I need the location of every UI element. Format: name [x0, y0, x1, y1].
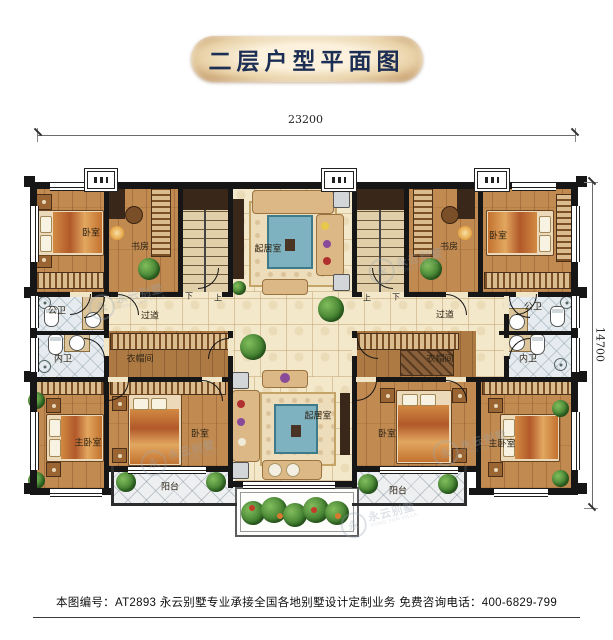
side-table [232, 372, 249, 389]
side-table [232, 462, 249, 479]
page-title: 二层户型平面图 [209, 42, 405, 76]
cushion [286, 463, 300, 477]
room-label-living-top: 起居室 [254, 242, 281, 255]
balcony-wall [111, 503, 237, 506]
room-label-closet-left: 衣帽间 [126, 352, 153, 365]
plant [552, 400, 569, 417]
cushion [323, 240, 331, 248]
sofa [232, 390, 260, 462]
shower-head [38, 360, 51, 373]
window [571, 206, 580, 262]
plant [438, 474, 458, 494]
cushion [237, 418, 245, 426]
plant [138, 258, 160, 280]
chair [441, 206, 459, 224]
room-label-study-right: 书房 [440, 240, 458, 253]
toilet [550, 306, 565, 327]
stair-label-down: 下 [392, 292, 400, 303]
room-label-bath-public-left: 公卫 [48, 304, 66, 317]
wall-interior [478, 182, 483, 297]
shower-head [554, 358, 567, 371]
floorplan-page: { "title": "二层户型平面图", "dimensions": { "w… [0, 0, 613, 640]
nightstand [46, 398, 61, 413]
room-label-bedroom-bottom-left: 卧室 [191, 427, 209, 440]
wall-interior [499, 331, 578, 335]
footer-info: 本图编号：AT2893 永云别墅专业承接全国各地别墅设计定制业务 免费咨询电话：… [0, 594, 613, 610]
side-table [333, 191, 350, 208]
dim-height-label: 14700 [594, 325, 607, 365]
window [30, 412, 39, 470]
window [30, 296, 39, 328]
vent-box [477, 171, 507, 189]
bookshelf [151, 187, 171, 257]
dim-width-label: 23200 [288, 113, 323, 126]
wall-interior [404, 182, 409, 297]
wardrobe [484, 272, 572, 289]
balcony-wall [111, 466, 114, 506]
window [571, 338, 580, 372]
plant [240, 334, 266, 360]
desk [457, 187, 475, 219]
dim-line-top [37, 135, 576, 136]
side-table [333, 274, 350, 291]
room-label-master-right: 主卧室 [488, 437, 515, 450]
window [243, 481, 335, 489]
plant [232, 281, 246, 295]
balcony-door-window [380, 466, 458, 474]
plant [116, 472, 136, 492]
room-label-bedroom-top-right: 卧室 [489, 229, 507, 242]
nightstand [488, 462, 503, 477]
window [571, 412, 580, 470]
nightstand [112, 448, 127, 463]
tv-cabinet [233, 199, 244, 279]
room-label-bedroom-top-left: 卧室 [82, 226, 100, 239]
wall-interior [178, 182, 183, 297]
sink [69, 335, 85, 351]
room-label-balcony-left: 阳台 [161, 480, 179, 493]
room-label-closet-right: 衣帽间 [426, 352, 453, 365]
wall-interior [352, 182, 357, 297]
room-label-balcony-right: 阳台 [389, 484, 407, 497]
vent-box [87, 171, 115, 189]
wall-interior [104, 182, 109, 488]
window [512, 182, 556, 191]
room-label-bath-public-right: 公卫 [524, 300, 542, 313]
cushion [321, 222, 329, 230]
wall-interior [222, 292, 233, 297]
sofa [252, 190, 334, 214]
plant [358, 474, 378, 494]
window [30, 338, 39, 372]
vent-box [324, 171, 354, 189]
planter-terrace [235, 487, 359, 537]
watermark-logo-icon: 永 [338, 509, 370, 541]
footer-divider [33, 617, 580, 618]
page-title-banner: 二层户型平面图 [191, 36, 423, 82]
tv-cabinet [340, 393, 350, 455]
wardrobe [482, 380, 572, 395]
room-label-bedroom-bottom-right: 卧室 [378, 427, 396, 440]
wardrobe [556, 194, 572, 262]
room-label-hall-right: 过道 [436, 308, 454, 321]
plant [206, 472, 226, 492]
chair [125, 206, 143, 224]
window [494, 488, 548, 497]
stair-label-up: 上 [214, 293, 222, 304]
nightstand [46, 462, 61, 477]
floor-lamp [458, 226, 472, 240]
wall-interior [30, 331, 109, 335]
room-label-bath-private-right: 内卫 [519, 352, 537, 365]
cushion [268, 463, 282, 477]
room-label-bath-private-left: 内卫 [54, 352, 72, 365]
stair-label-up: 上 [363, 293, 371, 304]
room-label-master-left: 主卧室 [74, 436, 101, 449]
window [571, 296, 580, 328]
wardrobe [34, 380, 104, 395]
floor-lamp [110, 226, 124, 240]
nightstand [488, 398, 503, 413]
wall-interior [228, 182, 233, 297]
cushion [323, 257, 331, 265]
sofa-bench [262, 279, 308, 295]
room-label-study-left: 书房 [131, 240, 149, 253]
wardrobe [36, 272, 104, 289]
room-label-hall-left: 过道 [141, 309, 159, 322]
window [50, 488, 102, 497]
plant [318, 296, 344, 322]
cushion [238, 438, 246, 446]
window [30, 206, 39, 262]
cushion [280, 373, 290, 383]
stair-label-down: 下 [185, 291, 193, 302]
plant [552, 470, 569, 487]
wall-interior [352, 292, 362, 297]
wall-interior [404, 292, 578, 297]
cushion [237, 400, 245, 408]
room-label-living-bottom: 起居室 [304, 409, 331, 422]
nightstand [380, 388, 395, 403]
desk [107, 187, 125, 219]
balcony-wall [464, 466, 467, 506]
